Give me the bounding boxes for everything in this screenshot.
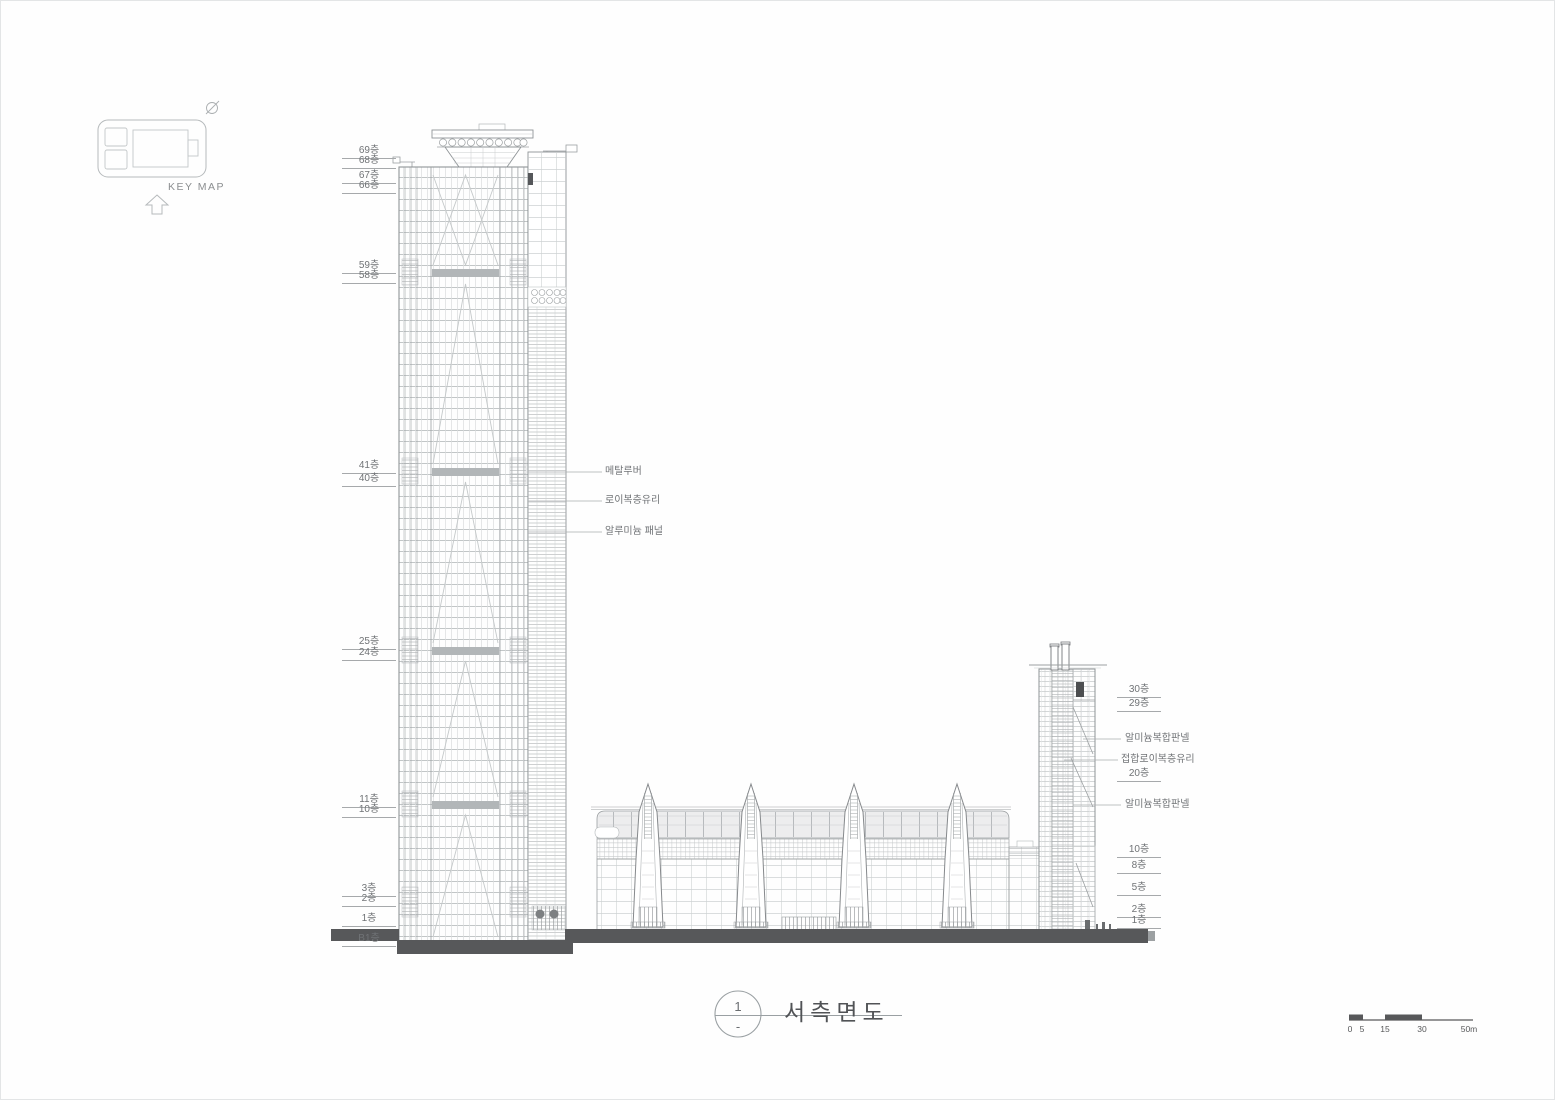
floor-label-1f: 1층 [342,913,396,927]
floor-label-1f-right: 1층 [1117,915,1161,929]
up-arrow-icon [146,195,168,214]
key-map-label: KEY MAP [168,182,225,193]
floor-label-10f-right: 10층 [1117,844,1161,858]
scale-label-5: 5 [1357,1024,1367,1034]
scale-bar-graphic [1349,1015,1473,1021]
view-title: 서측면도 [784,993,889,1027]
bmu-crane-left-icon [393,157,415,167]
scale-label-15: 15 [1378,1024,1392,1034]
annotation-aluminum-panel: 알루미늄 패널 [605,526,663,537]
floor-label-29f: 29층 [1117,698,1161,712]
floor-label-58f: 58층 [342,270,396,284]
floor-label-8f: 8층 [1117,860,1161,874]
convention-hall-graphic [591,784,1039,930]
north-symbol-icon [206,101,219,114]
annotation-metal-louver: 메탈루버 [605,466,642,477]
floor-label-b1f: B1층 [342,933,396,947]
floor-label-2f: 2층 [342,893,396,907]
drawing-sheet: KEY MAP 69층 68층 67층 66층 59층 58층 41층 40층 … [0,0,1555,1100]
floor-label-41f: 41층 [342,460,396,474]
floor-label-5f: 5층 [1117,882,1161,896]
floor-label-10f: 10층 [342,804,396,818]
floor-label-40f: 40층 [342,473,396,487]
floor-label-66f: 66층 [342,180,396,194]
view-number-sub: - [728,1019,748,1034]
floor-label-68f: 68층 [342,155,396,169]
annotation-laminated-lowe-glass: 접합로이복층유리 [1121,754,1195,765]
floor-label-30f: 30층 [1117,684,1161,698]
west-elevation-drawing [1,1,1555,1100]
annotation-leader-lines [528,472,1121,805]
key-map-graphic [98,101,219,214]
annotation-alum-composite-panel-top: 알미늄복합판넬 [1125,733,1189,744]
secondary-tower-graphic [1029,642,1111,930]
floor-label-24f: 24층 [342,647,396,661]
scale-label-0: 0 [1345,1024,1355,1034]
floor-label-20f: 20층 [1117,768,1161,782]
scale-label-50m: 50m [1457,1024,1481,1034]
annotation-lowe-glass: 로이복층유리 [605,495,660,506]
main-tower-graphic [393,124,577,942]
scale-label-30: 30 [1415,1024,1429,1034]
view-number: 1 [728,999,748,1014]
annotation-alum-composite-panel-mid: 알미늄복합판넬 [1125,799,1189,810]
